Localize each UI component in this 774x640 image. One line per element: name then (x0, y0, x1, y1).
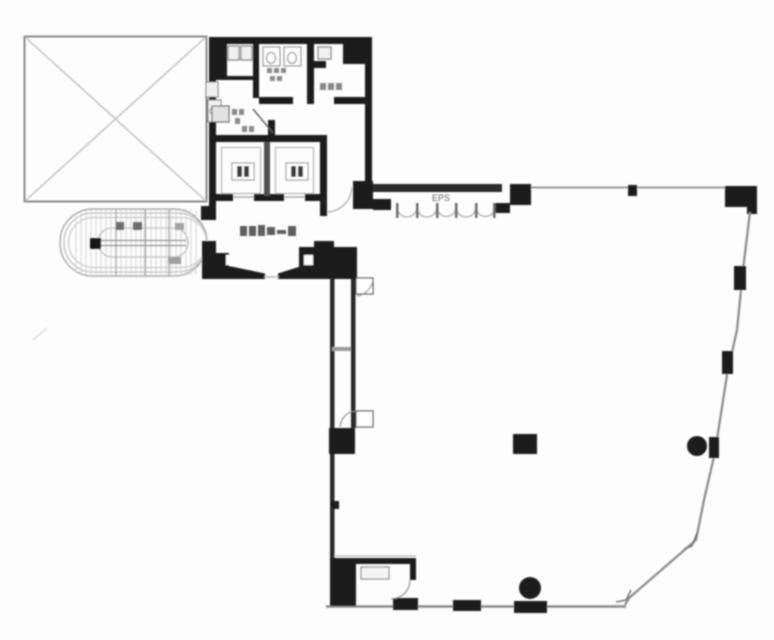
svg-text:EPS: EPS (432, 193, 450, 203)
